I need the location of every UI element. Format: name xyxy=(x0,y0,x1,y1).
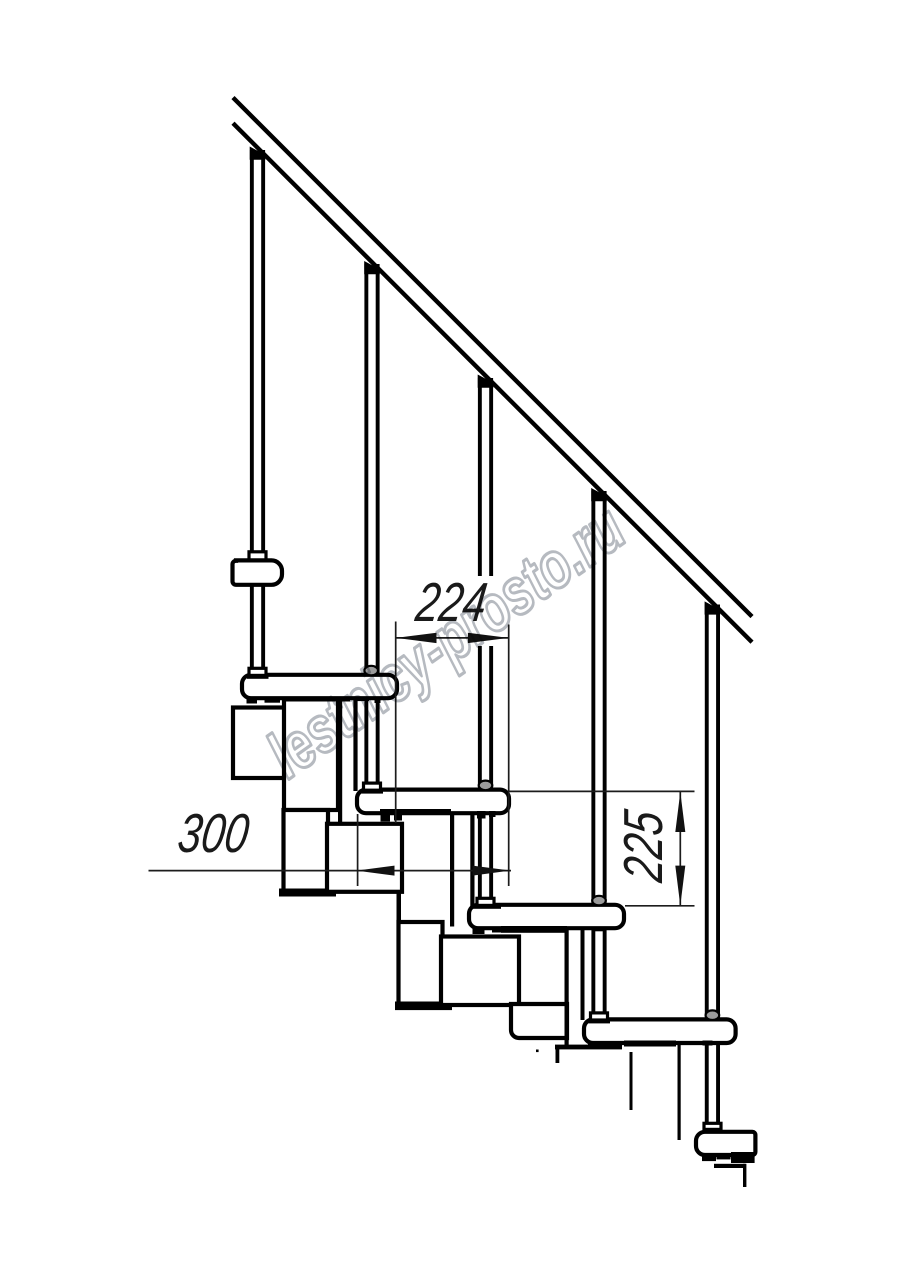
svg-text:225: 225 xyxy=(614,806,674,886)
svg-text:300: 300 xyxy=(174,804,252,864)
